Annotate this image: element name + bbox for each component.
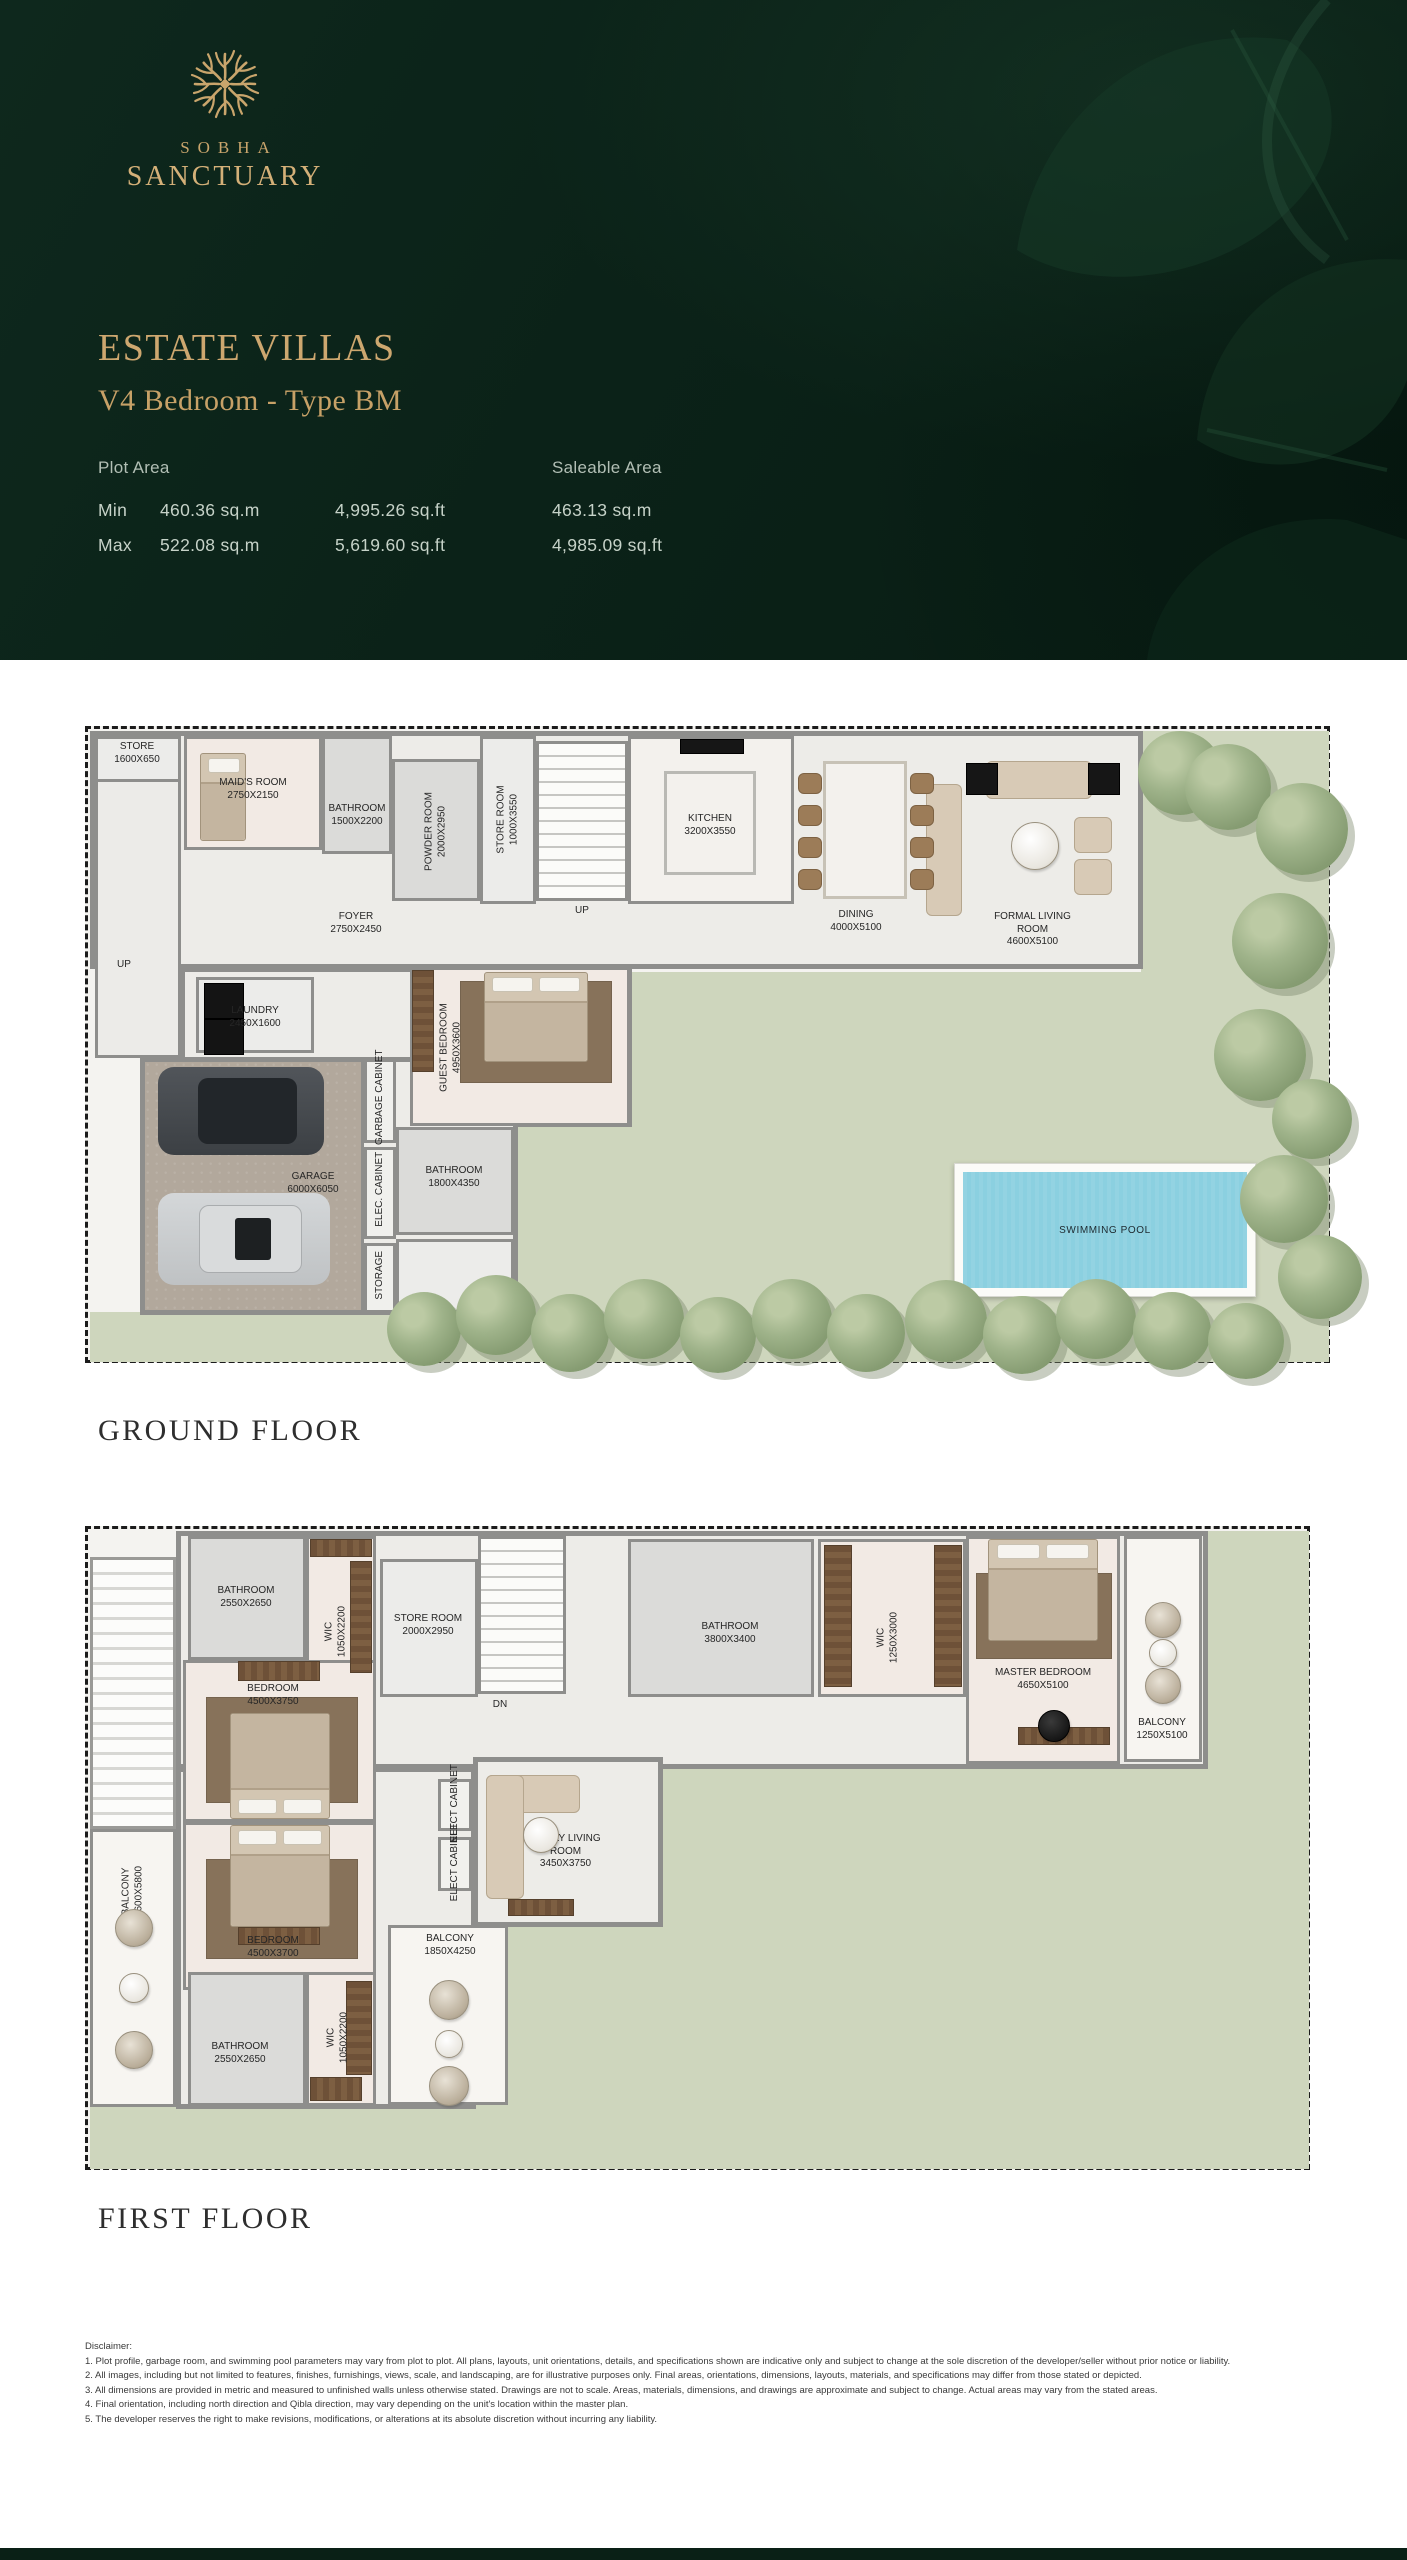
ground-floor-plan: SWIMMING POOL — [85, 726, 1330, 1363]
label-guest-bedroom: GUEST BEDROOM4950X3600 — [439, 978, 464, 1118]
label-dn: DN — [480, 1699, 520, 1712]
wardrobe — [310, 1539, 372, 1557]
tree-icon — [531, 1294, 609, 1372]
label-master-bedroom: MASTER BEDROOM4650X5100 — [978, 1667, 1108, 1692]
tree-icon — [1272, 1079, 1352, 1159]
balcony-chair — [429, 1980, 469, 2020]
sofa — [986, 761, 1092, 799]
dining-chair — [910, 773, 934, 794]
monstera-leaves-decor — [647, 0, 1407, 660]
label-garage: GARAGE6000X6050 — [253, 1171, 373, 1196]
tree-icon — [1232, 893, 1328, 989]
disclaimer-title: Disclaimer: — [85, 2340, 1335, 2355]
room-bathroom-1 — [322, 736, 392, 854]
label-balcony-master: BALCONY1250X5100 — [1122, 1717, 1202, 1742]
tree-icon — [1256, 783, 1348, 875]
swimming-pool: SWIMMING POOL — [963, 1172, 1247, 1288]
tree-icon — [983, 1296, 1061, 1374]
guest-bed — [484, 972, 588, 1062]
tree-icon — [1133, 1292, 1211, 1370]
disclaimer-item: 1. Plot profile, garbage room, and swimm… — [85, 2355, 1335, 2370]
label-foyer: FOYER2750X2450 — [296, 911, 416, 936]
label-storeroom: STORE ROOM2000X2950 — [368, 1613, 488, 1638]
wardrobe — [934, 1545, 962, 1687]
tree-icon — [752, 1279, 832, 1359]
first-floor-plan: BATHROOM2550X2650 WIC1050X2200 STORE ROO… — [85, 1526, 1310, 2170]
side-table — [966, 763, 998, 795]
tree-icon — [1240, 1155, 1328, 1243]
disclaimer-item: 4. Final orientation, including north di… — [85, 2398, 1335, 2413]
dresser — [238, 1661, 320, 1681]
saleable-sqft: 4,985.09 sq.ft — [552, 535, 662, 556]
dining-chair — [798, 837, 822, 858]
brand-name-bottom: SANCTUARY — [85, 161, 365, 193]
dining-table — [823, 761, 907, 899]
label-powder: POWDER ROOM2000X2950 — [424, 762, 449, 902]
label-up-drive: UP — [104, 959, 144, 972]
wardrobe — [824, 1545, 852, 1687]
balcony-table — [1149, 1639, 1177, 1667]
plot-max-sqm: 522.08 sq.m — [160, 535, 260, 556]
coffee-table — [523, 1817, 559, 1853]
label-formal-living: FORMAL LIVING ROOM4600X5100 — [985, 911, 1080, 949]
balcony-chair — [115, 2031, 153, 2069]
label-maids: MAID'S ROOM2750X2150 — [193, 777, 313, 802]
dining-chair — [910, 805, 934, 826]
label-bedroom-2: BEDROOM4500X3700 — [213, 1935, 333, 1960]
ground-floor-title: GROUND FLOOR — [98, 1414, 362, 1448]
plot-min-sqft: 4,995.26 sq.ft — [335, 500, 445, 521]
balcony-chair — [1145, 1668, 1181, 1704]
plot-min-label: Min — [98, 500, 127, 521]
pool-label: SWIMMING POOL — [1059, 1225, 1151, 1236]
room-bathroom-3 — [188, 1972, 306, 2106]
label-bedroom-1: BEDROOM4500X3750 — [213, 1683, 333, 1708]
label-storeroom: STORE ROOM1000X3550 — [496, 750, 521, 890]
room-bathroom-2 — [628, 1539, 814, 1697]
label-bathroom-1: BATHROOM2550X2650 — [186, 1585, 306, 1610]
label-wic-1: WIC1050X2200 — [324, 1572, 349, 1692]
plot-area-label: Plot Area — [98, 458, 170, 478]
armchair — [1074, 859, 1112, 895]
tree-icon — [1056, 1279, 1136, 1359]
bed — [230, 1825, 330, 1927]
garden — [508, 1925, 663, 2107]
balcony-chair — [115, 1909, 153, 1947]
label-kitchen: KITCHEN3200X3550 — [650, 813, 770, 838]
car — [158, 1067, 324, 1155]
tree-icon — [1208, 1303, 1284, 1379]
garden — [661, 1767, 1309, 2107]
label-bathroom-3: BATHROOM2550X2650 — [180, 2041, 300, 2066]
wardrobe — [412, 970, 434, 1072]
tree-icon — [680, 1297, 756, 1373]
header-banner: SOBHA SANCTUARY ESTATE VILLAS V4 Bedroom… — [0, 0, 1407, 660]
tree-icon — [1278, 1235, 1362, 1319]
first-floor-title: FIRST FLOOR — [98, 2202, 313, 2236]
label-dining: DINING4000X5100 — [796, 909, 916, 934]
dining-chair — [910, 837, 934, 858]
label-bathroom-1: BATHROOM1500X2200 — [302, 803, 412, 828]
label-laundry: LAUNDRY2450X1600 — [195, 1005, 315, 1030]
garden — [90, 2105, 1309, 2169]
master-bed — [988, 1539, 1098, 1641]
footer-band — [0, 2548, 1407, 2560]
stove — [680, 739, 744, 754]
plot-max-label: Max — [98, 535, 132, 556]
label-bathroom-2: BATHROOM3800X3400 — [670, 1621, 790, 1646]
plot-min-sqm: 460.36 sq.m — [160, 500, 260, 521]
brochure-page: SOBHA SANCTUARY ESTATE VILLAS V4 Bedroom… — [0, 0, 1407, 2560]
branch-tree-icon — [165, 40, 285, 128]
staircase — [478, 1536, 566, 1694]
label-up-stairs: UP — [552, 905, 612, 918]
bed — [230, 1713, 330, 1819]
louvre-pergola — [90, 1557, 176, 1829]
staircase — [536, 741, 628, 901]
balcony-chair — [1145, 1602, 1181, 1638]
dining-chair — [798, 773, 822, 794]
label-elect-cabinet-2: ELECT CABINET — [449, 1812, 462, 1912]
plot-max-sqft: 5,619.60 sq.ft — [335, 535, 445, 556]
tv-console — [508, 1899, 574, 1916]
pool-deck: SWIMMING POOL — [954, 1163, 1256, 1297]
dining-chair — [910, 869, 934, 890]
label-storage: STORAGE — [374, 1230, 387, 1320]
brand-name-top: SOBHA — [85, 138, 365, 158]
tree-icon — [905, 1280, 987, 1362]
dining-chair — [798, 805, 822, 826]
page-subtitle: V4 Bedroom - Type BM — [98, 384, 402, 418]
label-store: STORE1600X650 — [92, 741, 182, 766]
garden — [1203, 1531, 1309, 1769]
disclaimer-item: 5. The developer reserves the right to m… — [85, 2413, 1335, 2428]
label-wic-2: WIC1250X3000 — [876, 1578, 901, 1698]
label-elec-cabinet: ELEC. CABINET — [374, 1139, 387, 1239]
brand-block: SOBHA SANCTUARY — [85, 40, 365, 193]
car — [158, 1193, 330, 1285]
side-table — [1088, 763, 1120, 795]
page-title: ESTATE VILLAS — [98, 326, 396, 370]
tree-icon — [387, 1292, 461, 1366]
saleable-area-label: Saleable Area — [552, 458, 662, 478]
tree-icon — [827, 1294, 905, 1372]
tree-icon — [604, 1279, 684, 1359]
label-bathroom-2: BATHROOM1800X4350 — [394, 1165, 514, 1190]
driveway — [95, 736, 181, 1058]
disclaimer-item: 2. All images, including but not limited… — [85, 2369, 1335, 2384]
saleable-sqm: 463.13 sq.m — [552, 500, 652, 521]
disclaimer: Disclaimer: 1. Plot profile, garbage roo… — [85, 2340, 1335, 2427]
balcony-chair — [429, 2066, 469, 2106]
balcony-table — [435, 2030, 463, 2058]
balcony-table — [119, 1973, 149, 2003]
armchair — [1074, 817, 1112, 853]
tree-icon — [456, 1275, 536, 1355]
label-wic-3: WIC1050X2200 — [326, 1978, 351, 2098]
accent-chair — [1038, 1710, 1070, 1742]
coffee-table — [1011, 822, 1059, 870]
label-garbage-cabinet: GARBAGE CABINET — [374, 1047, 387, 1147]
label-balcony-3: BALCONY1850X4250 — [390, 1933, 510, 1958]
dining-chair — [798, 869, 822, 890]
disclaimer-item: 3. All dimensions are provided in metric… — [85, 2384, 1335, 2399]
